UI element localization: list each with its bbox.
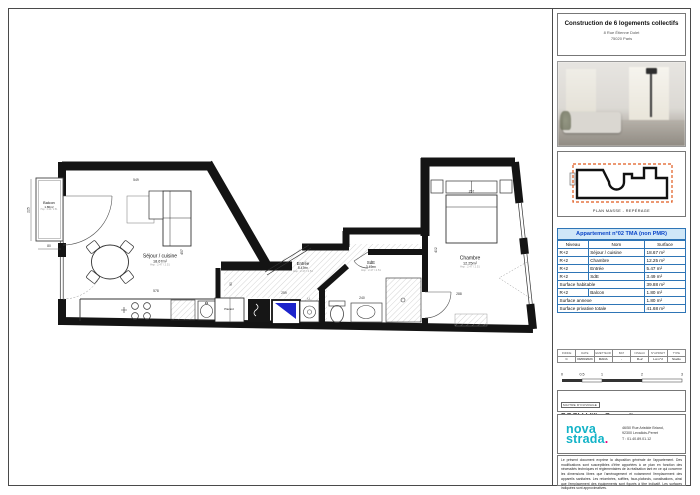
apartment-surface-table: Appartement n°02 TMA (non PMR) Niveau No… bbox=[557, 228, 686, 313]
svg-text:402: 402 bbox=[434, 247, 438, 253]
owner-label: MAITRE D'OUVRAGE bbox=[561, 402, 600, 408]
col-surface: Surface bbox=[645, 240, 686, 248]
render-window-left bbox=[566, 69, 596, 117]
table-row: R+2 Chambre 12.25 m² bbox=[558, 256, 686, 264]
revision-table: INDICE DATE EMETTEUR BAT NIVEAU N°APPART… bbox=[557, 349, 686, 364]
svg-text:90: 90 bbox=[229, 282, 233, 286]
col-niveau: Niveau bbox=[558, 240, 589, 248]
project-title-block: Construction de 6 logements collectifs 8… bbox=[557, 13, 686, 56]
interior-render-photo bbox=[557, 61, 686, 147]
plan-masse-map bbox=[569, 157, 675, 205]
svg-text:257: 257 bbox=[469, 190, 475, 194]
bathroom-fixtures bbox=[329, 278, 421, 323]
surface-privative-row: Surface privative totale 41.68 m² bbox=[558, 304, 686, 312]
svg-text:0.5: 0.5 bbox=[580, 373, 585, 377]
logo-dot: . bbox=[605, 432, 609, 446]
nova-strada-logo: nova strada. bbox=[558, 424, 622, 445]
render-lamp-shade bbox=[646, 68, 657, 74]
architect-logo-block: nova strada. 46/50 Rue Aristide Briand, … bbox=[557, 414, 686, 454]
room-label-sde: SdE 3.49m² Hsp : 2.47 / 2.51 bbox=[361, 260, 381, 272]
apartment-table-title: Appartement n°02 TMA (non PMR) bbox=[557, 228, 686, 240]
render-window-right bbox=[629, 67, 669, 121]
svg-text:1: 1 bbox=[601, 373, 603, 377]
technical-duct bbox=[248, 299, 270, 322]
plan-masse-box: PLAN MASSE - REPÉRAGE bbox=[557, 151, 686, 217]
svg-text:240: 240 bbox=[359, 296, 365, 300]
washing-machine-label: LL bbox=[308, 298, 311, 301]
render-sofa bbox=[563, 112, 621, 133]
surface-annexe-row: Surface annexe 1.80 m² bbox=[558, 296, 686, 304]
render-plant bbox=[560, 111, 571, 130]
washing-machine bbox=[300, 301, 319, 322]
bedroom-furniture bbox=[431, 180, 512, 326]
balcony bbox=[31, 178, 63, 249]
project-title: Construction de 6 logements collectifs bbox=[558, 20, 685, 27]
svg-text:259: 259 bbox=[281, 291, 287, 295]
title-column: Construction de 6 logements collectifs 8… bbox=[552, 8, 691, 486]
table-row: R+2 Entrée 5.47 m² bbox=[558, 264, 686, 272]
svg-text:2: 2 bbox=[641, 373, 643, 377]
plan-masse-caption: PLAN MASSE - REPÉRAGE bbox=[558, 209, 685, 213]
room-label-chambre: Chambre 12.25m² Hsp : 2.47 / 2.51 bbox=[460, 256, 481, 269]
svg-text:3: 3 bbox=[681, 373, 683, 377]
living-room-furniture bbox=[86, 191, 191, 284]
table-row: R+2 Séjour / cuisine 18.67 m² bbox=[558, 248, 686, 256]
hallway-elements bbox=[215, 298, 319, 324]
surface-habitable-row: Surface habitable 39.88 m² bbox=[558, 280, 686, 288]
room-label-sejour: Séjour / cuisine 18.67m² Hsp : 2.47 / 2.… bbox=[143, 254, 177, 267]
svg-text:457: 457 bbox=[180, 249, 184, 255]
svg-text:225: 225 bbox=[27, 207, 31, 213]
room-label-balcon: Balcon 1.80m² Hsp : 2.44 / 2.51 bbox=[41, 201, 58, 211]
room-label-entree: Entrée 5.47m² Hsp : 2.47 / 2.51 bbox=[293, 261, 313, 273]
svg-text:549: 549 bbox=[133, 178, 139, 182]
legal-disclaimer-text: Le présent document exprime la dispositi… bbox=[561, 458, 682, 491]
svg-text:0: 0 bbox=[561, 373, 563, 377]
legal-disclaimer-block: Le présent document exprime la dispositi… bbox=[557, 455, 686, 486]
revision-value-row: C 09/06/2023 MADA - R+2 Lot n°2 Studio bbox=[558, 356, 686, 363]
render-lamp bbox=[650, 71, 652, 117]
scale-bar: 0 0.5 1 2 3 bbox=[557, 371, 686, 386]
svg-text:578: 578 bbox=[153, 289, 159, 293]
placard-label: Placard bbox=[224, 307, 233, 311]
project-address-line2: 75020 Paris bbox=[611, 36, 632, 41]
architect-address: 46/50 Rue Aristide Briand, 92300 Levallo… bbox=[622, 426, 664, 443]
col-nom: Nom bbox=[588, 240, 644, 248]
project-address-line1: 8 Rue Étienne Dolet bbox=[604, 30, 640, 35]
owner-block: MAITRE D'OUVRAGE SCCV Villa Comedia bbox=[557, 390, 686, 412]
revision-header-row: INDICE DATE EMETTEUR BAT NIVEAU N°APPART… bbox=[558, 350, 686, 357]
balcon-row: R+2 Balcon 1.80 m² bbox=[558, 288, 686, 296]
svg-text:288: 288 bbox=[456, 292, 462, 296]
table-header-row: Niveau Nom Surface bbox=[558, 240, 686, 248]
svg-text:80: 80 bbox=[47, 244, 51, 248]
table-row: R+2 SdE 3.49 m² bbox=[558, 272, 686, 280]
